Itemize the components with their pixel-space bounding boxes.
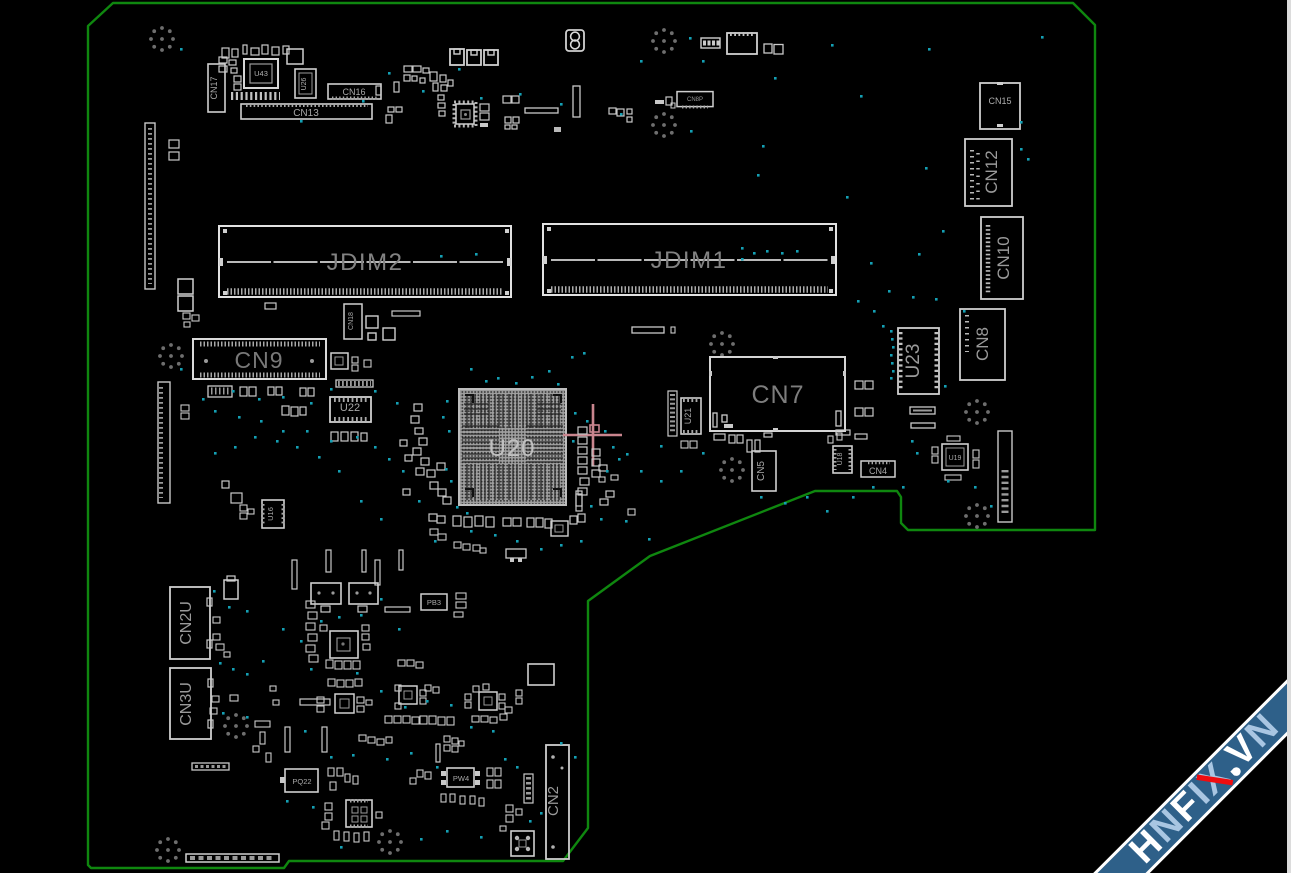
svg-text:JDIM1: JDIM1 xyxy=(651,247,728,274)
svg-text:PW4: PW4 xyxy=(453,774,469,783)
svg-text:U23: U23 xyxy=(903,344,924,379)
svg-text:U43: U43 xyxy=(254,69,268,78)
svg-text:CN7: CN7 xyxy=(751,381,804,409)
svg-text:CN2: CN2 xyxy=(545,786,562,816)
svg-text:CN8P: CN8P xyxy=(687,97,703,103)
svg-text:CN3U: CN3U xyxy=(178,682,195,726)
svg-text:CN17: CN17 xyxy=(209,76,219,99)
svg-text:CN4: CN4 xyxy=(869,466,887,476)
svg-text:CN18: CN18 xyxy=(348,312,355,330)
svg-text:U16: U16 xyxy=(266,507,275,521)
svg-text:CN8: CN8 xyxy=(973,327,992,361)
svg-text:U22: U22 xyxy=(340,402,360,414)
svg-text:CN2U: CN2U xyxy=(178,601,195,645)
svg-text:CN10: CN10 xyxy=(994,236,1013,279)
svg-text:CN9: CN9 xyxy=(234,347,283,373)
svg-text:CN15: CN15 xyxy=(988,96,1011,106)
svg-text:CN16: CN16 xyxy=(342,87,365,97)
svg-text:U20: U20 xyxy=(488,435,535,462)
svg-text:U18: U18 xyxy=(837,452,844,465)
svg-text:CN12: CN12 xyxy=(982,150,1001,193)
svg-text:U21: U21 xyxy=(683,408,693,425)
svg-text:CN5: CN5 xyxy=(756,461,767,481)
svg-text:JDIM2: JDIM2 xyxy=(327,249,404,276)
svg-text:U26: U26 xyxy=(301,77,308,90)
svg-text:CN13: CN13 xyxy=(293,108,319,119)
svg-text:U19: U19 xyxy=(949,455,962,462)
svg-text:PB3: PB3 xyxy=(427,598,441,607)
svg-text:PQ22: PQ22 xyxy=(292,777,311,786)
